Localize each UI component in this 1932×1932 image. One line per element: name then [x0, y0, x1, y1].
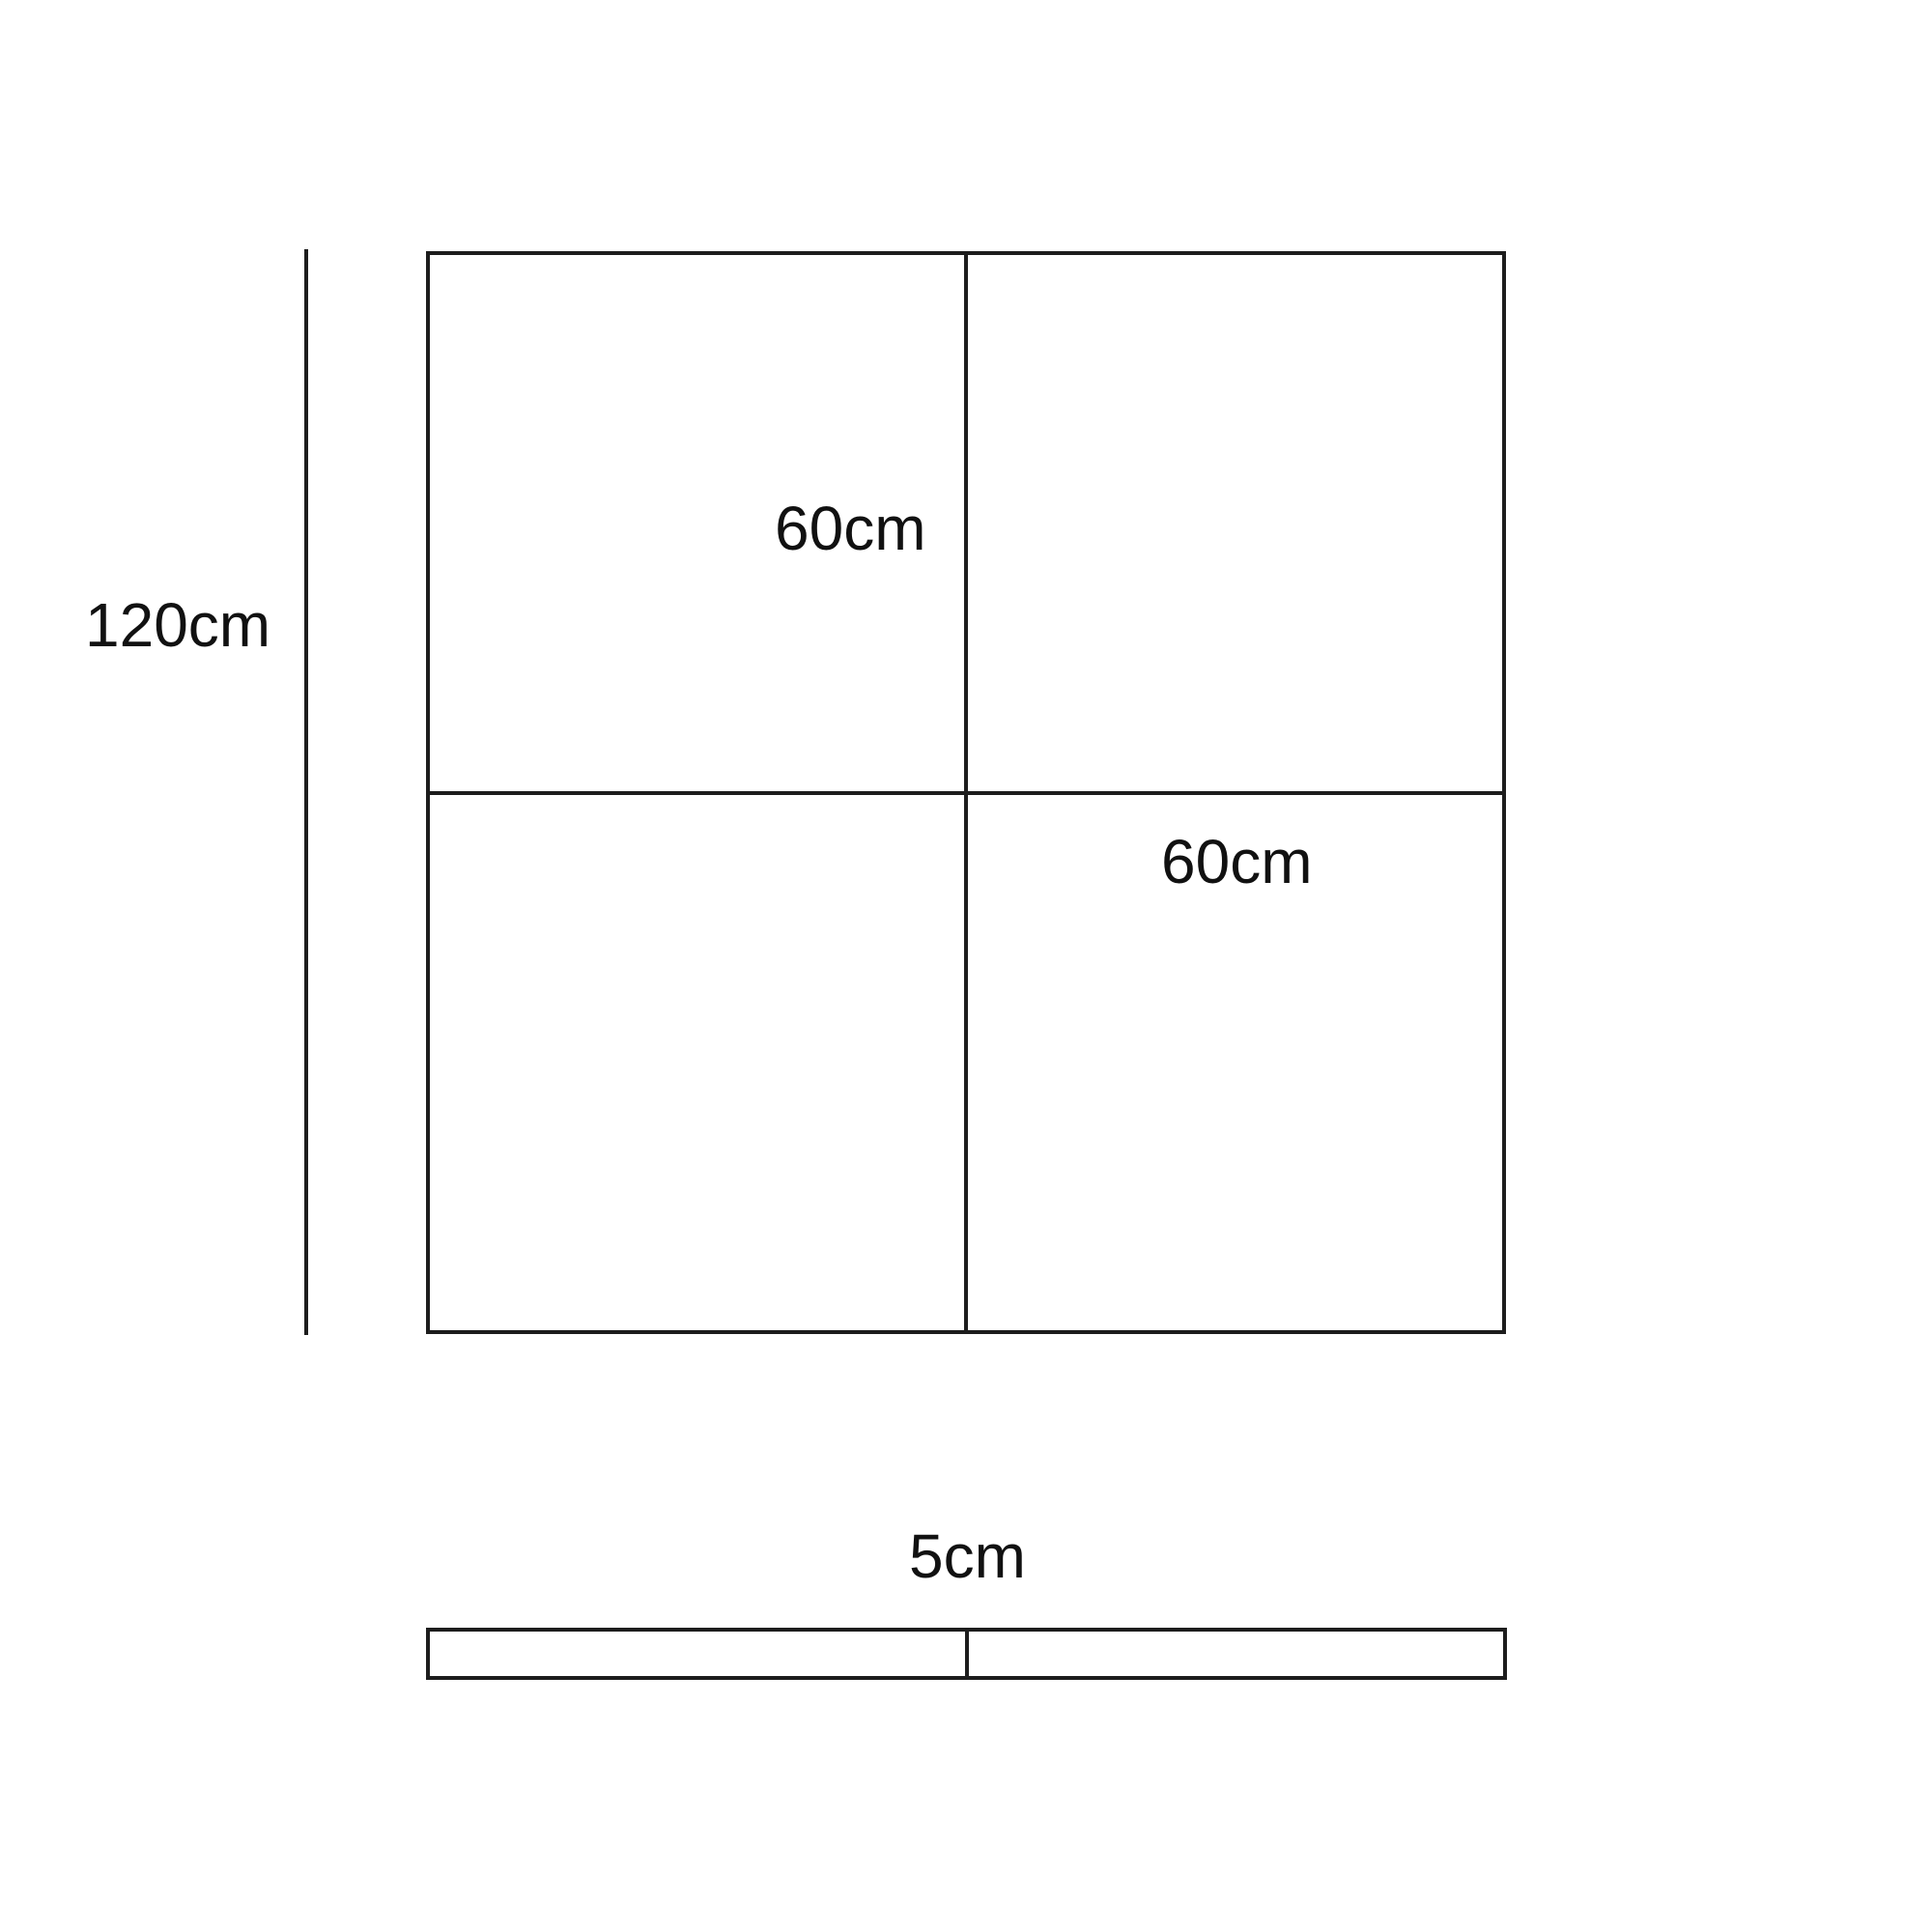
quadrant-divider-horizontal-line — [430, 791, 1502, 795]
thickness-label: 5cm — [909, 1525, 1026, 1587]
top-left-quadrant-size-label: 60cm — [775, 497, 926, 559]
panel-front-view: 60cm 60cm — [426, 251, 1506, 1334]
bottom-right-quadrant-size-label: 60cm — [1161, 831, 1313, 893]
panel-side-view — [426, 1628, 1507, 1680]
overall-height-label: 120cm — [85, 594, 270, 656]
height-dimension-line — [304, 249, 308, 1335]
side-view-divider-line — [965, 1632, 969, 1676]
panel-dimension-diagram: 120cm 60cm 60cm 5cm — [0, 0, 1932, 1932]
